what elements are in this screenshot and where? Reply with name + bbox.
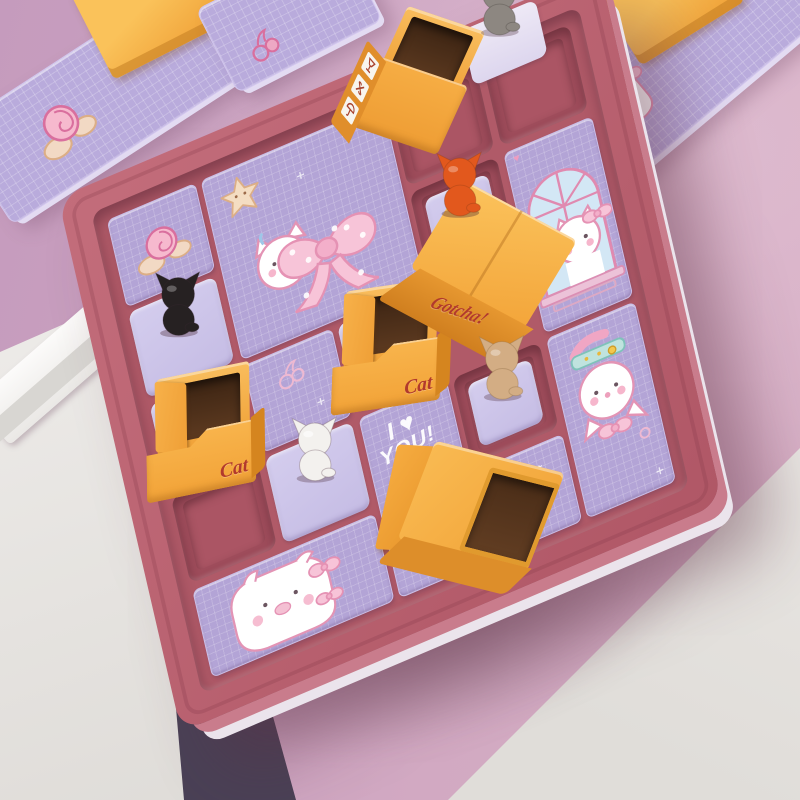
tan-cat-figure bbox=[473, 330, 531, 403]
black-cat-figure bbox=[149, 266, 207, 339]
cat-box-1: Cat bbox=[145, 358, 265, 510]
scene: ♥ + bbox=[0, 0, 800, 800]
white-cat-figure bbox=[286, 411, 344, 484]
sparkle-doodle: + bbox=[315, 393, 327, 409]
box-flap bbox=[155, 382, 188, 454]
cherries-doodle bbox=[270, 350, 314, 401]
cherries-doodle bbox=[237, 18, 293, 74]
cat-box-label: Cat bbox=[404, 370, 433, 400]
cat-box-label: Cat bbox=[219, 453, 249, 484]
rose-flower-doodle bbox=[15, 80, 112, 174]
box-side bbox=[251, 406, 266, 479]
sparkle-doodle: + bbox=[654, 462, 666, 478]
pinwheel-icon bbox=[351, 73, 370, 103]
box-flap bbox=[342, 294, 376, 368]
gray-cat-figure bbox=[470, 0, 528, 39]
umbrella-hook-icon bbox=[341, 96, 360, 126]
orange-cat-figure bbox=[431, 147, 489, 220]
sparkle-doodle: + bbox=[294, 167, 306, 183]
fragile-glass-icon bbox=[361, 51, 380, 81]
